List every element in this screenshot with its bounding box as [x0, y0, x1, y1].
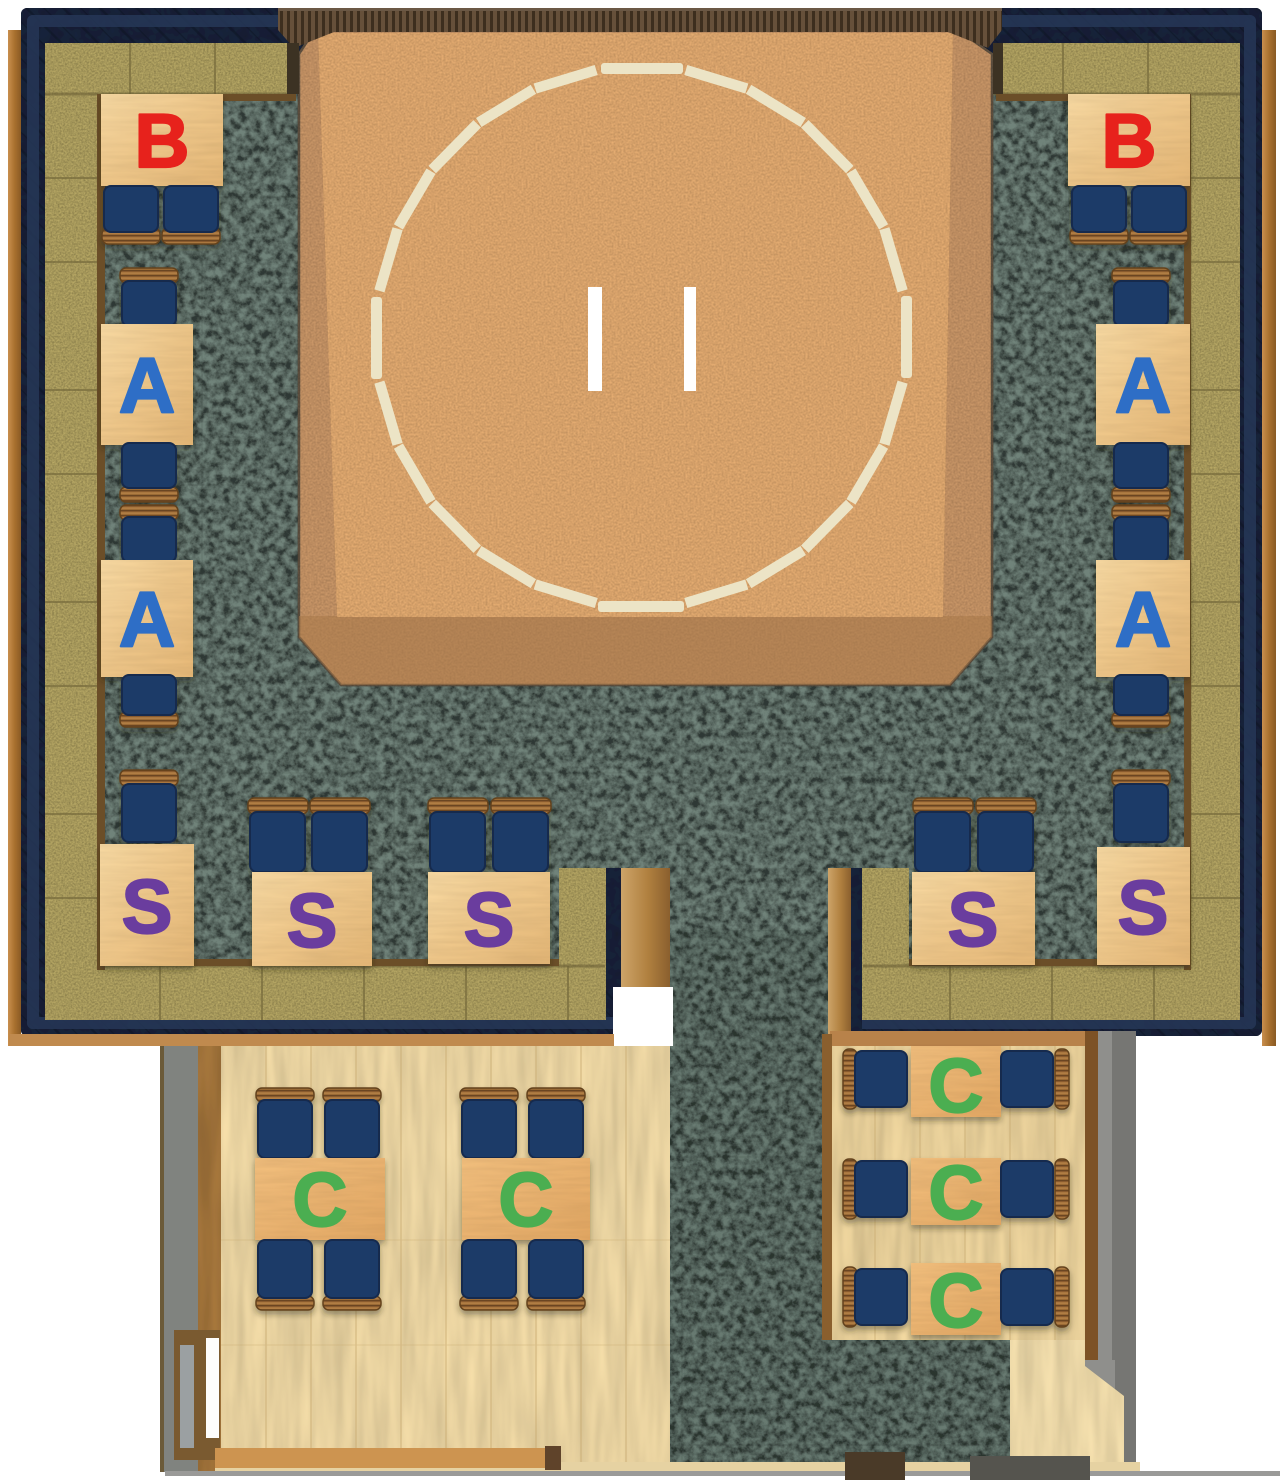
svg-text:S: S [948, 878, 999, 963]
svg-text:C: C [929, 1044, 984, 1129]
svg-text:B: B [135, 99, 190, 184]
svg-text:A: A [1115, 575, 1171, 663]
svg-text:A: A [1115, 341, 1171, 429]
svg-text:C: C [929, 1151, 984, 1236]
svg-text:S: S [122, 865, 173, 950]
svg-text:C: C [293, 1158, 348, 1243]
svg-text:C: C [929, 1259, 984, 1344]
svg-text:S: S [1118, 866, 1169, 951]
svg-text:B: B [1102, 99, 1157, 184]
svg-text:A: A [119, 575, 175, 663]
svg-text:C: C [499, 1158, 554, 1243]
svg-text:A: A [119, 341, 175, 429]
svg-text:S: S [464, 878, 515, 963]
svg-text:S: S [287, 879, 338, 964]
